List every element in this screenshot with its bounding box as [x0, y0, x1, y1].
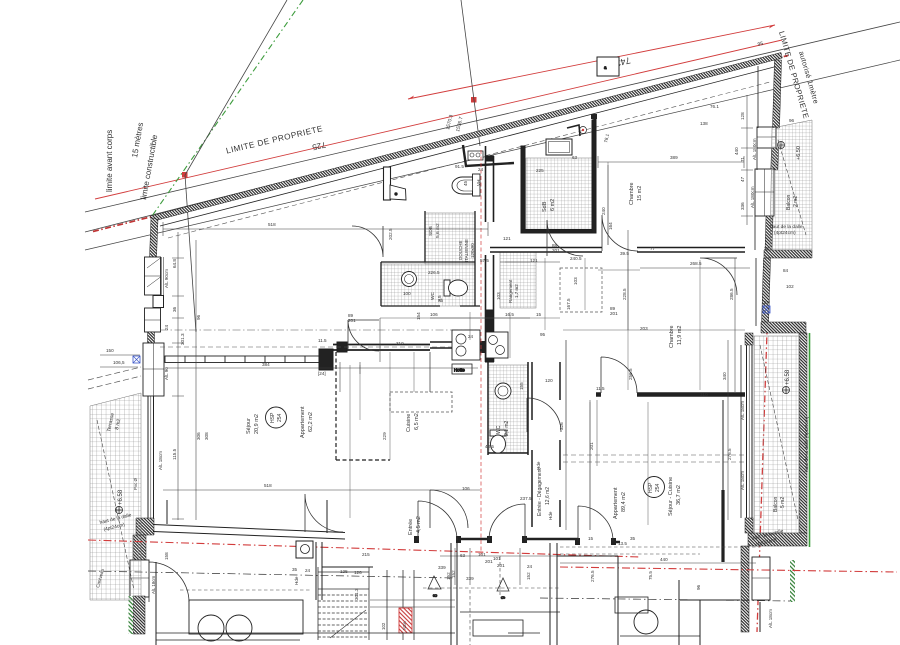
svg-text:AlL 90cm: AlL 90cm — [164, 269, 169, 288]
svg-text:Hde: Hde — [294, 576, 299, 585]
svg-text:63: 63 — [572, 155, 578, 160]
svg-text:154: 154 — [416, 312, 421, 320]
svg-text:228.5: 228.5 — [622, 288, 627, 300]
svg-text:57.5: 57.5 — [480, 258, 489, 263]
svg-text:48.5: 48.5 — [485, 444, 494, 449]
svg-text:5 m2: 5 m2 — [780, 497, 786, 508]
svg-text:164: 164 — [608, 222, 613, 230]
svg-text:301.3: 301.3 — [354, 588, 359, 600]
svg-text:9: 9 — [501, 596, 507, 599]
svg-text:[24]: [24] — [318, 371, 326, 376]
svg-text:Rangement: Rangement — [508, 279, 513, 303]
svg-text:102: 102 — [381, 622, 386, 630]
svg-text:201: 201 — [348, 318, 356, 323]
svg-text:2,1 m2: 2,1 m2 — [504, 420, 510, 436]
svg-text:AlL 90: AlL 90 — [164, 367, 169, 380]
svg-text:336: 336 — [740, 202, 745, 210]
svg-text:15 m2: 15 m2 — [637, 186, 643, 201]
svg-text:158: 158 — [164, 552, 169, 560]
svg-text:11.5: 11.5 — [318, 338, 327, 343]
svg-text:138: 138 — [700, 121, 708, 126]
svg-text:HSP: HSP — [270, 412, 276, 423]
svg-text:96: 96 — [196, 314, 201, 320]
svg-text:15: 15 — [536, 312, 542, 317]
svg-text:84: 84 — [783, 268, 789, 273]
svg-text:Séjour: Séjour — [246, 418, 252, 434]
svg-text:DOUCHE: DOUCHE — [458, 240, 463, 260]
svg-text:+6.58: +6.58 — [118, 489, 124, 505]
svg-text:AlL 18cm: AlL 18cm — [158, 451, 163, 470]
svg-text:SDB: SDB — [428, 226, 434, 236]
svg-text:96: 96 — [696, 584, 701, 590]
svg-text:HSP: HSP — [648, 482, 654, 493]
svg-text:152: 152 — [451, 570, 456, 578]
svg-text:339: 339 — [438, 565, 446, 570]
svg-text:5,6 m2: 5,6 m2 — [435, 223, 441, 238]
svg-text:276.5: 276.5 — [590, 570, 595, 582]
svg-text:310: 310 — [700, 392, 708, 397]
svg-text:440: 440 — [660, 557, 668, 562]
svg-text:Chambre: Chambre — [669, 325, 675, 348]
svg-text:haut de la dalle (4pt24cm): haut de la dalle (4pt24cm) — [804, 416, 810, 472]
svg-text:24: 24 — [468, 334, 474, 339]
svg-text:201: 201 — [610, 311, 618, 316]
svg-text:ITALIENNE: ITALIENNE — [464, 239, 469, 262]
svg-text:20,9 m2: 20,9 m2 — [254, 414, 260, 434]
svg-text:225: 225 — [536, 168, 544, 173]
svg-text:75.5: 75.5 — [648, 571, 653, 580]
svg-text:Chambre: Chambre — [629, 182, 635, 205]
svg-text:254: 254 — [655, 483, 661, 492]
svg-text:WC: WC — [430, 291, 436, 300]
svg-text:45: 45 — [463, 180, 468, 186]
svg-text:AlL 18cm: AlL 18cm — [768, 609, 773, 628]
svg-text:389: 389 — [670, 155, 678, 160]
svg-text:128: 128 — [740, 112, 745, 120]
svg-text:(4pt24cm): (4pt24cm) — [774, 230, 796, 236]
svg-text:Balcon: Balcon — [773, 496, 779, 512]
svg-text:384: 384 — [262, 362, 270, 367]
svg-text:11,9 m2: 11,9 m2 — [677, 326, 683, 345]
svg-text:254: 254 — [277, 413, 283, 422]
svg-text:306: 306 — [196, 432, 201, 440]
svg-text:286.5: 286.5 — [729, 288, 734, 300]
svg-text:1,7 m2: 1,7 m2 — [514, 284, 519, 298]
svg-text:103: 103 — [496, 292, 501, 300]
svg-text:34: 34 — [764, 246, 770, 251]
svg-text:440: 440 — [734, 147, 739, 155]
svg-text:256.5: 256.5 — [628, 368, 633, 380]
svg-text:Hde: Hde — [548, 511, 553, 520]
svg-text:121: 121 — [503, 236, 511, 241]
svg-text:308: 308 — [204, 432, 209, 440]
svg-text:276.5: 276.5 — [727, 448, 732, 460]
svg-text:91.5: 91.5 — [455, 164, 464, 169]
svg-text:340: 340 — [722, 372, 727, 380]
svg-text:268.5: 268.5 — [690, 261, 702, 266]
svg-text:35: 35 — [630, 536, 636, 541]
svg-text:89,4 m2: 89,4 m2 — [621, 492, 627, 512]
svg-text:201: 201 — [589, 442, 594, 450]
svg-text:101: 101 — [493, 556, 501, 561]
svg-text:13.5: 13.5 — [618, 541, 627, 546]
svg-text:201: 201 — [497, 563, 505, 568]
svg-text:Appartement: Appartement — [300, 406, 306, 438]
svg-text:106,5: 106,5 — [113, 360, 125, 365]
svg-text:518: 518 — [268, 222, 276, 227]
svg-text:120: 120 — [545, 378, 553, 383]
svg-text:240.5: 240.5 — [570, 256, 582, 261]
svg-text:240: 240 — [601, 207, 606, 215]
svg-text:96: 96 — [789, 118, 795, 123]
svg-text:Entrée - Dégagement: Entrée - Dégagement — [537, 468, 543, 516]
svg-text:64.8: 64.8 — [172, 259, 177, 268]
svg-text:115.5: 115.5 — [172, 448, 177, 460]
svg-text:35: 35 — [292, 567, 298, 572]
svg-text:2,5: 2,5 — [437, 295, 443, 302]
svg-text:106: 106 — [430, 312, 438, 317]
svg-text:Pvc Ø: Pvc Ø — [133, 477, 138, 490]
svg-text:+6.50: +6.50 — [796, 146, 802, 160]
svg-text:WC: WC — [496, 425, 502, 434]
svg-text:AlL 18cm: AlL 18cm — [740, 401, 745, 420]
svg-text:haut de la dalle: haut de la dalle — [770, 224, 803, 230]
svg-text:121: 121 — [530, 258, 538, 263]
svg-text:Séjour - Cuisine: Séjour - Cuisine — [668, 477, 674, 516]
svg-text:+6.58: +6.58 — [785, 369, 791, 385]
svg-text:6 m2: 6 m2 — [550, 199, 556, 211]
svg-text:VH: VH — [476, 180, 481, 186]
svg-text:71: 71 — [740, 156, 745, 162]
svg-text:77: 77 — [650, 246, 656, 251]
svg-text:24: 24 — [305, 568, 311, 573]
svg-text:AlL 18cm: AlL 18cm — [740, 471, 745, 490]
svg-text:150: 150 — [106, 348, 114, 353]
svg-text:16.5: 16.5 — [505, 312, 514, 317]
svg-text:Appartement: Appartement — [613, 487, 619, 519]
svg-text:11.5: 11.5 — [596, 386, 605, 391]
svg-text:36,7 m2: 36,7 m2 — [676, 485, 682, 505]
svg-text:36: 36 — [172, 306, 177, 312]
svg-text:EP: EP — [764, 300, 770, 305]
svg-text:6,5 m2: 6,5 m2 — [414, 413, 420, 430]
svg-text:Entrée: Entrée — [408, 519, 414, 535]
svg-text:8: 8 — [433, 594, 439, 597]
svg-text:AlL 18cm: AlL 18cm — [151, 576, 156, 594]
svg-text:103: 103 — [573, 277, 578, 285]
svg-text:NSA: NSA — [402, 621, 407, 630]
svg-text:Balcon: Balcon — [786, 194, 792, 210]
svg-text:24: 24 — [164, 324, 169, 330]
svg-text:201: 201 — [485, 559, 493, 564]
svg-text:76.1: 76.1 — [710, 104, 719, 109]
svg-text:102: 102 — [786, 284, 794, 289]
svg-text:125: 125 — [340, 569, 348, 574]
svg-text:202.5: 202.5 — [388, 228, 393, 240]
svg-text:215: 215 — [362, 552, 370, 557]
svg-text:4,5 m2: 4,5 m2 — [416, 516, 422, 533]
svg-text:AlL 180cm: AlL 180cm — [750, 186, 755, 208]
svg-text:126: 126 — [354, 570, 362, 575]
svg-text:326: 326 — [559, 422, 564, 430]
svg-text:AlL 180cm: AlL 180cm — [752, 138, 757, 160]
svg-text:63: 63 — [460, 553, 466, 558]
svg-text:95: 95 — [540, 332, 546, 337]
svg-text:106: 106 — [462, 486, 470, 491]
svg-text:15: 15 — [588, 536, 594, 541]
svg-text:339: 339 — [466, 576, 474, 581]
svg-text:100: 100 — [403, 291, 411, 296]
svg-text:226.5: 226.5 — [428, 270, 440, 275]
svg-text:201: 201 — [552, 248, 560, 253]
svg-text:310: 310 — [396, 341, 404, 346]
svg-text:limite avant corps: limite avant corps — [105, 130, 114, 192]
svg-text:24: 24 — [527, 564, 533, 569]
svg-text:12,6 m2: 12,6 m2 — [545, 487, 551, 505]
svg-text:237.5: 237.5 — [520, 496, 532, 501]
svg-text:152: 152 — [526, 572, 531, 580]
svg-text:47: 47 — [740, 176, 745, 182]
svg-text:39.5: 39.5 — [620, 251, 629, 256]
svg-text:203: 203 — [640, 326, 648, 331]
svg-text:Cuisine: Cuisine — [406, 414, 412, 432]
svg-text:301.3: 301.3 — [180, 333, 185, 345]
svg-text:229: 229 — [382, 432, 387, 440]
svg-text:101: 101 — [478, 552, 486, 557]
svg-text:120x90: 120x90 — [470, 243, 475, 258]
svg-text:518: 518 — [264, 483, 272, 488]
svg-text:167.5: 167.5 — [566, 298, 571, 310]
svg-text:155: 155 — [519, 382, 524, 390]
svg-text:62,2 m2: 62,2 m2 — [308, 412, 314, 432]
svg-text:SdB: SdB — [542, 201, 548, 212]
svg-text:24: 24 — [478, 167, 484, 172]
